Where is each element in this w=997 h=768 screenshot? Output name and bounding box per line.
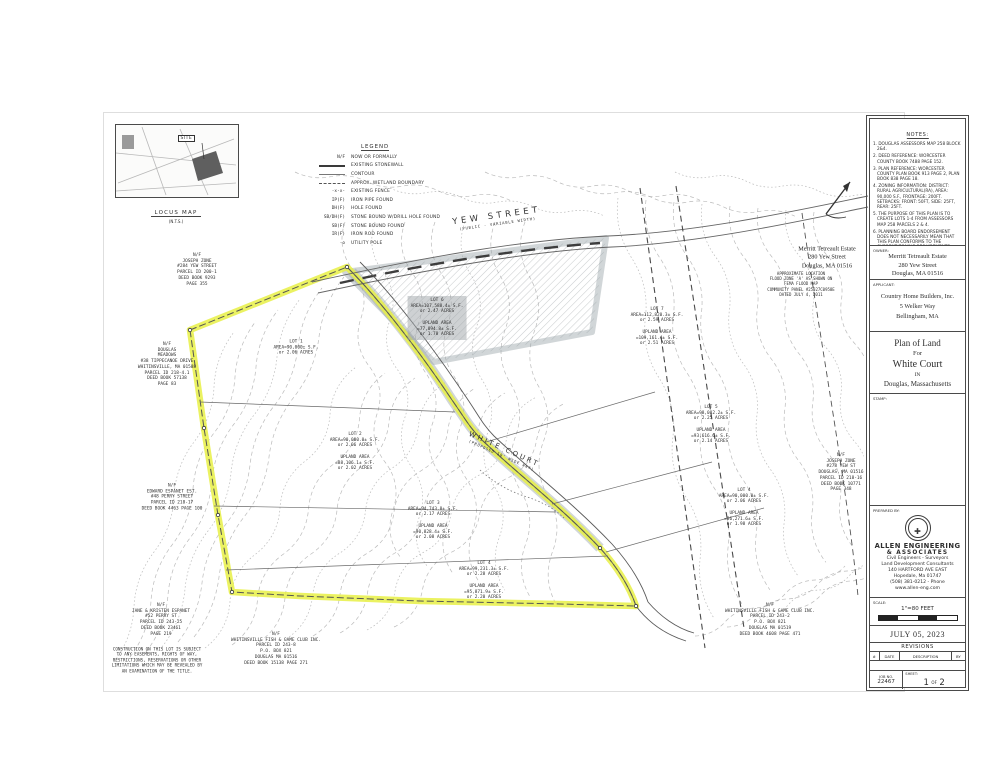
lot-divider-3 [226, 556, 608, 570]
text-line: Country Home Builders, Inc. [873, 292, 962, 302]
legend-symbol: -x-x- [303, 189, 351, 194]
date-box: JULY 05, 2023 [870, 626, 965, 643]
scale-bar-segment [879, 616, 899, 621]
text-line: PAGE 219 [132, 631, 190, 637]
text-line: AN EXAMINATION OF THE TITLE. [112, 668, 203, 673]
plan-title-line4: IN [870, 372, 965, 378]
lot-divider-5 [552, 462, 712, 504]
legend-symbol: IR(F) [303, 232, 351, 237]
stamp-box: STAMP: [870, 394, 965, 506]
legend-label: NOW OR FORMALLY [351, 155, 397, 160]
text-line: or 2.08 ACRES [408, 535, 458, 541]
lot-divider-1 [200, 402, 455, 412]
scale-bar-segment [937, 616, 957, 621]
text-line: 280 Yew Street [873, 262, 962, 271]
legend-label: IRON ROD FOUND [351, 232, 393, 237]
owner-box: OWNER: Merritt Tetreault Estate280 Yew S… [870, 246, 965, 280]
legend-item: CONTOUR [303, 170, 493, 179]
notes-title: NOTES: [906, 132, 928, 139]
scale-box: SCALE: 1"=80 FEET [870, 598, 965, 626]
graphic-scale-bar [878, 615, 958, 622]
allen-engineering-logo-icon [905, 515, 931, 541]
legend-item: N/FNOW OR FORMALLY [303, 153, 493, 162]
legend-label: IRON PIPE FOUND [351, 198, 393, 203]
text-line: DEED BOOK 4463 PAGE 100 [142, 507, 203, 513]
abutter-jane-kristen-espanet: N/FJANE & KRISTEN ESPANET#52 PERRY STPAR… [132, 603, 190, 637]
text-line: 280 Yew Street [798, 254, 856, 262]
text-line: 3. PLAN REFERENCE: WORCESTER COUNTY PLAN… [873, 166, 962, 182]
text-line: PAGE 83 [138, 382, 196, 388]
prepared-by-box: PREPARED BY: ALLEN ENGINEERING & ASSOCIA… [870, 506, 965, 598]
text-line: 5. THE PURPOSE OF THIS PLAN IS TO CREATE… [873, 211, 962, 227]
text-line: or 2.20 ACRES [459, 595, 509, 601]
text-line: DEED BOOK 4608 PAGE 471 [725, 631, 815, 637]
legend-symbol: -o [303, 241, 351, 246]
text-line: 4. ZONING INFORMATION: DISTRICT: RURAL A… [873, 183, 962, 209]
contour-line [232, 373, 385, 645]
legend-symbol: N/F [303, 155, 351, 160]
contour-line [675, 172, 890, 200]
text-line: or 2.51 ACRES [631, 341, 684, 347]
legend-label: STONE BOUND FOUND [351, 224, 404, 229]
legend-symbol: SB(F) [303, 224, 351, 229]
abutter-whitinsville-fish-game-west: N/FWHITINSVILLE FISH & GAME CLUB INC.PAR… [231, 632, 321, 666]
lot-4-label: LOT 4AREA=99,231.3± S.F.or 2.28 ACRES UP… [459, 561, 509, 601]
lot-1-label: LOT 1AREA=90,000± S.F.or 2.06 ACRES [274, 339, 319, 356]
text-line: Merritt Tetreault Estate [798, 245, 856, 253]
locus-caption-title: LOCUS MAP [151, 210, 202, 217]
sheet-number-cell: SHEET: 1 OF 2 [903, 671, 965, 689]
abutter-joseph-zone-north: N/FJOSEPH ZONE#284 YEW STREETPARCEL ID 2… [177, 253, 217, 287]
owner-label-on-plan: Merritt Tetreault Estate280 Yew StreetDo… [798, 245, 856, 270]
legend-item: -x-x-EXISTING FENCE [303, 187, 493, 196]
lot-4-east-label: LOT 4AREA=90,000.0± S.F.or 2.06 ACRES UP… [719, 488, 769, 528]
locus-sketch [116, 125, 238, 197]
lot-2-label: LOT 2AREA=90,000.0± S.F.or 2.06 ACRES UP… [330, 432, 380, 472]
revisions-header-row: # DATE DESCRIPTION BY [870, 652, 965, 661]
job-number-value: 22467 [877, 679, 895, 685]
plan-date: JULY 05, 2023 [890, 630, 945, 639]
legend-label: CONTOUR [351, 172, 375, 177]
abutter-douglas-meadows: N/FDOUGLASMEADOWS#38 TIPPECANOE DRIVEWHI… [138, 342, 196, 388]
text-line: 1. DOUGLAS ASSESSORS MAP 258 BLOCK 2&4. [873, 141, 962, 152]
legend-label: UTILITY POLE [351, 241, 382, 246]
contour-line [645, 200, 742, 604]
text-line: DATED JULY 4, 2011 [767, 292, 834, 297]
locus-map: SITE [115, 124, 239, 198]
notes-list: 1. DOUGLAS ASSESSORS MAP 258 BLOCK 2&4.2… [873, 141, 962, 246]
text-line: Merritt Tetreault Estate [873, 253, 962, 262]
legend-label: STONE BOUND W/DRILL HOLE FOUND [351, 215, 440, 220]
applicant-lines: Country Home Builders, Inc.5 Welker WayB… [873, 292, 962, 321]
text-line: or 1.78 ACRES [411, 332, 464, 338]
applicant-label: APPLICANT: [873, 282, 962, 287]
legend-symbol [303, 183, 351, 184]
text-line: or 2.14 ACRES [686, 439, 736, 445]
text-line: Douglas, MA 01516 [798, 262, 856, 270]
stonewall-symbol [319, 165, 345, 168]
revisions-col-date: DATE [880, 652, 901, 660]
sheet-total: 2 [939, 678, 944, 688]
text-line: 2. DEED REFERENCE: WORCESTER COUNTY BOOK… [873, 153, 962, 164]
plan-title-line1: Plan of Land [870, 338, 965, 348]
plan-title-box: Plan of Land For White Court IN Douglas,… [870, 332, 965, 394]
text-line: or 2.06 ACRES [274, 351, 319, 357]
stamp-label: STAMP: [873, 396, 962, 401]
revisions-title: REVISIONS [870, 643, 965, 652]
plan-title-line3: White Court [870, 359, 965, 370]
text-line: or 2.02 ACRES [330, 466, 380, 472]
legend-label: EXISTING STONEWALL [351, 163, 404, 168]
legend-label: APPROX. WETLAND BOUNDARY [351, 181, 424, 186]
locus-caption-scale: (N.T.S.) [115, 219, 237, 224]
revisions-col-description: DESCRIPTION [900, 652, 951, 660]
lot-5-label: LOT 5AREA=98,082.2± S.F.or 2.25 ACRES UP… [686, 405, 736, 445]
legend-label: HOLE FOUND [351, 206, 382, 211]
road-extension-west [636, 606, 686, 641]
locus-pond [122, 135, 134, 149]
scanned-survey-plan-page: SITE LOCUS MAP (N.T.S.) LEGEND N/FNOW OR… [0, 0, 997, 768]
text-line: Bellingham, MA [873, 312, 962, 322]
road-extension-east [648, 602, 694, 633]
scale-bar-segment [898, 616, 918, 621]
lot-divider-4 [486, 392, 655, 442]
contour-symbol [319, 174, 345, 175]
text-line: DEED BOOK 9293 [177, 276, 217, 282]
legend-item: APPROX. WETLAND BOUNDARY [303, 179, 493, 188]
company-name-line1: ALLEN ENGINEERING [873, 542, 962, 550]
scale-bar-segment [918, 616, 938, 621]
locus-site-parcel [192, 151, 223, 181]
text-line: 6. PLANNING BOARD ENDORSEMENT DOES NOT N… [873, 229, 962, 246]
legend-symbol: SB/DH(F) [303, 215, 351, 220]
job-number-cell: JOB NO. 22467 [870, 671, 903, 689]
lot-divider-2 [214, 506, 556, 512]
text-line: 5 Welker Way [873, 302, 962, 312]
owner-lines: Merritt Tetreault Estate280 Yew StreetDo… [873, 253, 962, 279]
contour-line [580, 188, 795, 216]
text-line: COMMUNITY PANEL #25027C0958E [767, 287, 834, 292]
prepared-by-label: PREPARED BY: [873, 508, 962, 513]
revisions-col-by: BY [952, 652, 965, 660]
abutter-edward-espanet: N/FEDWARD ESPANET EST.#48 PERRY STREETPA… [142, 484, 203, 513]
plan-title-line2: For [870, 350, 965, 357]
revisions-box: REVISIONS # DATE DESCRIPTION BY [870, 643, 965, 671]
legend-item: IP(F)IRON PIPE FOUND [303, 196, 493, 205]
text-line: Douglas, MA 01516 [873, 270, 962, 279]
text-line: PAGE 355 [177, 281, 217, 287]
plan-title-line5: Douglas, Massachusetts [870, 380, 965, 388]
text-line: PAGE 348 [819, 487, 864, 493]
notes-box: NOTES: 1. DOUGLAS ASSESSORS MAP 258 BLOC… [870, 119, 965, 246]
flood-zone-note: APPROXIMATE LOCATIONFLOOD ZONE 'A' AS SH… [767, 271, 834, 297]
lot-3-label: LOT 3AREA=94,743.8± S.F.or 2.17 ACRES UP… [408, 501, 458, 541]
legend-item: EXISTING STONEWALL [303, 162, 493, 171]
construction-note: CONSTRUCTION ON THIS LOT IS SUBJECTTO AN… [112, 646, 203, 673]
scale-value: 1"=80 FEET [873, 606, 962, 612]
sheet-number: 1 OF 2 [903, 676, 965, 689]
abutter-whitinsville-fish-game-east: N/FWHITINSVILLE FISH & GAME CLUB INC.PAR… [725, 603, 815, 637]
legend-symbol [303, 174, 351, 175]
legend-symbol: IP(F) [303, 198, 351, 203]
title-block-column: NOTES: 1. DOUGLAS ASSESSORS MAP 258 BLOC… [869, 118, 966, 688]
company-website: www.allen-eng.com [873, 586, 962, 592]
legend-item: DH(F)HOLE FOUND [303, 205, 493, 214]
applicant-box: APPLICANT: Country Home Builders, Inc.5 … [870, 280, 965, 332]
text-line: PARCEL ID 218-16 [819, 476, 864, 482]
scale-label: SCALE: [873, 600, 962, 605]
wetland-symbol [319, 183, 345, 184]
revisions-col-number: # [870, 652, 880, 660]
legend-item: -oUTILITY POLE [303, 239, 493, 248]
text-line: DEED BOOK 15138 PAGE 271 [231, 660, 321, 666]
contour-line [485, 172, 700, 200]
locus-caption: LOCUS MAP (N.T.S.) [115, 199, 237, 224]
legend-symbol: DH(F) [303, 206, 351, 211]
north-arrow-icon [826, 182, 850, 218]
legend-title: LEGEND [361, 144, 389, 151]
site-label: SITE [178, 135, 195, 142]
job-sheet-box: JOB NO. 22467 SHEET: 1 OF 2 [870, 671, 965, 689]
legend-items: N/FNOW OR FORMALLYEXISTING STONEWALLCONT… [303, 153, 493, 248]
lot-7-label: LOT 7AREA=112,820.3± S.F.or 2.59 ACRES U… [631, 307, 684, 347]
abutter-joseph-zone-east: N/FJOSEPH ZONE#278 YEW STDOUGLAS, MA 015… [819, 453, 864, 493]
text-line: or 1.98 ACRES [719, 522, 769, 528]
sheet-current: 1 [924, 678, 929, 688]
text-line: WHITINSVILLE, MA 01588 [138, 365, 196, 371]
legend-label: EXISTING FENCE [351, 189, 390, 194]
lot-6-label-highlighted: LOT 6AREA=107,588.4± S.F.or 2.47 ACRES U… [408, 296, 467, 340]
legend-symbol [303, 165, 351, 168]
sheet-of: OF [931, 680, 936, 685]
